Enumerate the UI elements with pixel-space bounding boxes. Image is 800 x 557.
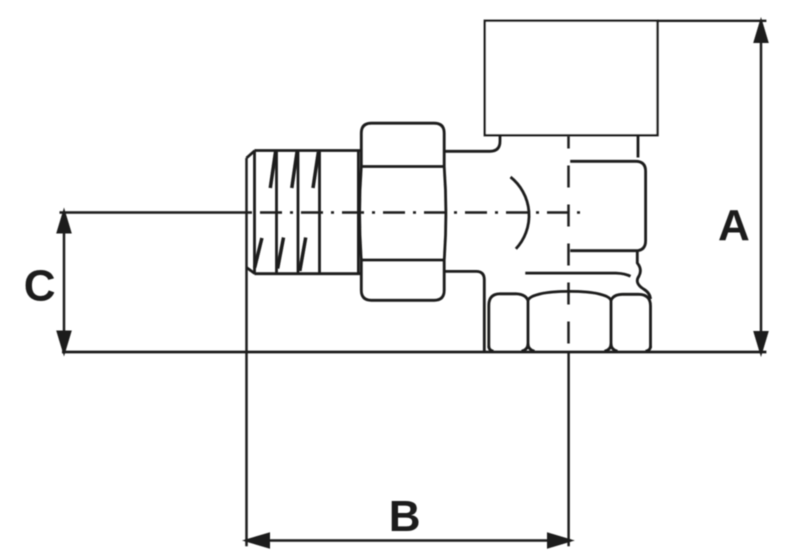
svg-text:A: A: [718, 201, 750, 250]
svg-text:C: C: [24, 262, 56, 311]
svg-text:B: B: [389, 492, 421, 541]
